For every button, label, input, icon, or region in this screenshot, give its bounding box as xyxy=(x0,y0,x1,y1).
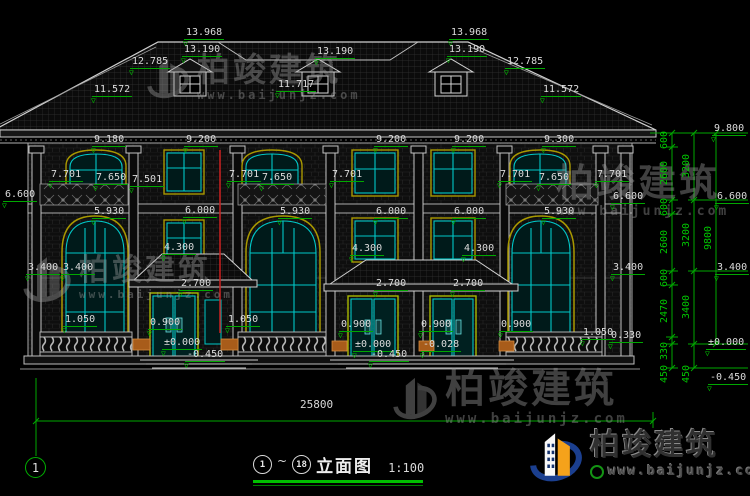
title-scale: 1:100 xyxy=(388,461,424,475)
watermark-url: www.baijunjz.com xyxy=(79,289,233,300)
site-logo-icon xyxy=(530,424,582,486)
watermark-brand: 柏竣建筑 xyxy=(197,53,361,86)
eave-cornice xyxy=(0,130,656,143)
title-underline-thin xyxy=(253,485,423,486)
watermark-top: 柏竣建筑 www.baijunjz.com xyxy=(146,50,361,104)
watermark-url: www.baijunjz.com xyxy=(197,89,361,101)
watermark-brand: 柏竣建筑 xyxy=(79,256,233,286)
total-width-dimension: 25800 xyxy=(300,398,333,411)
porch-railings xyxy=(40,332,602,356)
site-logo-brand: 柏竣建筑 xyxy=(590,428,718,463)
watermark-logo-icon xyxy=(392,368,438,426)
title-axis-end-bubble: 18 xyxy=(292,455,311,474)
title-axis-separator: ~ xyxy=(277,454,287,468)
watermark-brand: 柏竣建筑 xyxy=(445,369,628,409)
green-circle-icon xyxy=(590,465,604,479)
watermark-left: 柏竣建筑 www.baijunjz.com xyxy=(22,248,233,308)
watermark-logo-icon xyxy=(146,50,190,104)
watermark-right: 柏竣建筑 www.baijunjz.com xyxy=(556,164,729,218)
drawing-title: 1 ~ 18 立面图 1:100 xyxy=(253,452,424,486)
title-underline xyxy=(253,480,423,483)
watermark-bottom: 柏竣建筑 www.baijunjz.com xyxy=(392,368,628,426)
site-logo: 柏竣建筑 www.baijunjz.com xyxy=(530,424,750,486)
watermark-url: www.baijunjz.com xyxy=(556,205,729,218)
title-axis-start-bubble: 1 xyxy=(253,455,272,474)
title-name: 立面图 xyxy=(316,452,373,477)
balcony-balustrades xyxy=(40,184,598,205)
axis-bubble-1: 1 xyxy=(25,457,46,478)
watermark-brand: 柏竣建筑 xyxy=(556,164,729,202)
site-logo-url: www.baijunjz.com xyxy=(590,464,750,479)
watermark-logo-icon xyxy=(22,248,72,308)
cad-elevation-screenshot: 柏竣建筑 www.baijunjz.com 柏竣建筑 www.baijunjz.… xyxy=(0,0,750,496)
